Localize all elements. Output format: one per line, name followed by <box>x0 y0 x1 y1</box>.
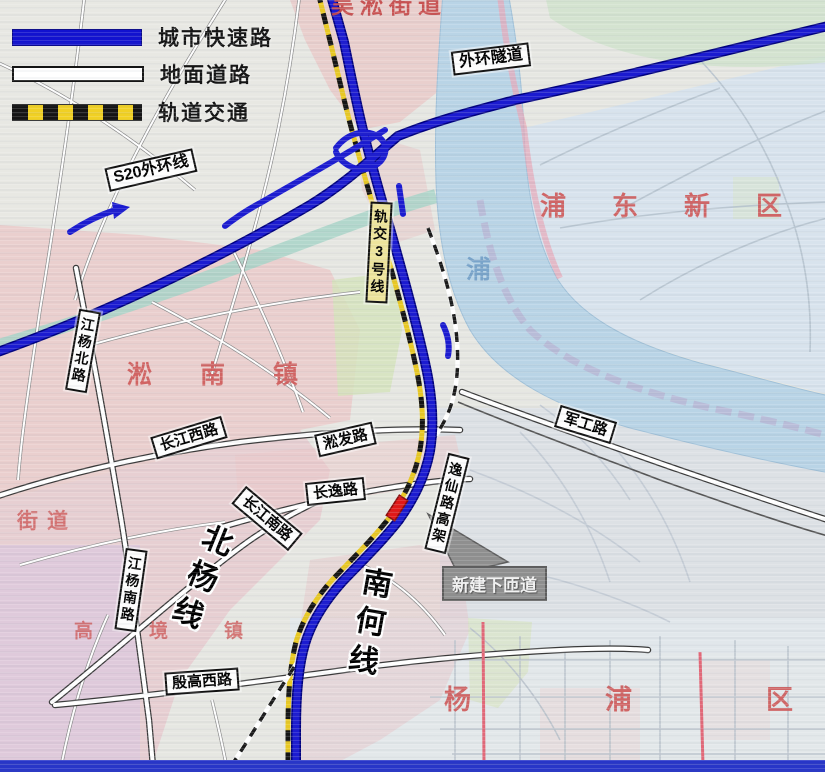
expressway-line-swatch <box>12 29 142 46</box>
district-pudong: 浦东新区 <box>540 186 825 223</box>
district-jiedao-partial: 街道 <box>17 505 77 535</box>
district-songnan: 淞南镇 <box>127 355 346 391</box>
district-yangpu: 杨浦区 <box>444 678 825 717</box>
map-canvas: 城市快速路 地面道路 轨道交通 S20外环线 外环隧道 轨交3号线 江杨北路 长… <box>0 0 825 772</box>
region-lavender <box>0 545 140 772</box>
legend-item-rail-transit: 轨道交通 <box>12 97 250 127</box>
surface-road-line-swatch <box>12 66 144 82</box>
legend-label: 轨道交通 <box>158 97 250 127</box>
rail-transit-line-swatch <box>12 104 142 121</box>
legend-label: 城市快速路 <box>158 22 273 52</box>
legend-item-expressway: 城市快速路 <box>12 22 273 52</box>
bottom-map-strip <box>0 760 825 772</box>
annotation-new-ramp: 新建下匝道 <box>442 566 547 601</box>
district-wusong: 吴淞街道 <box>331 0 447 20</box>
legend-label: 地面道路 <box>160 59 252 89</box>
legend-item-surface-road: 地面道路 <box>12 59 252 89</box>
river-name-char: 浦 <box>466 250 491 286</box>
